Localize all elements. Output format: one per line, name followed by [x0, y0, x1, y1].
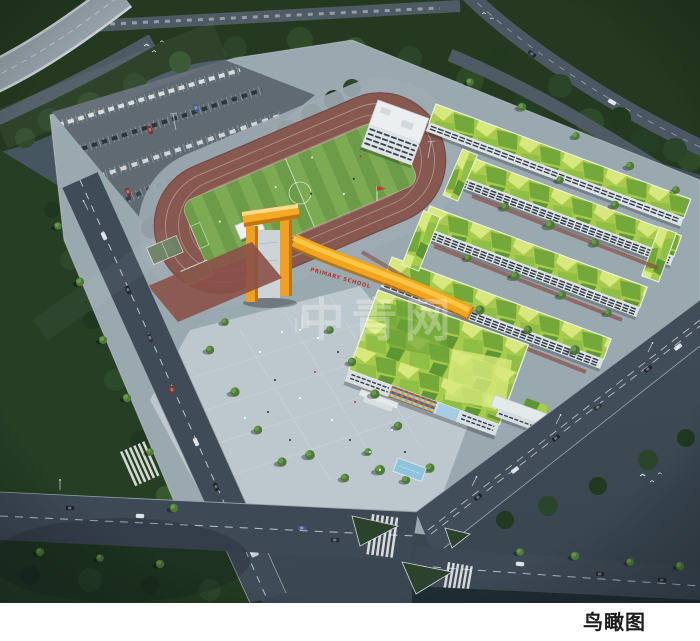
- screenshot-root: PRIMARY SCHOOL: [0, 0, 700, 641]
- watermark: 中青网: [299, 293, 458, 347]
- aerial-rendering: PRIMARY SCHOOL: [0, 0, 700, 603]
- image-caption: 鸟瞰图: [583, 606, 646, 635]
